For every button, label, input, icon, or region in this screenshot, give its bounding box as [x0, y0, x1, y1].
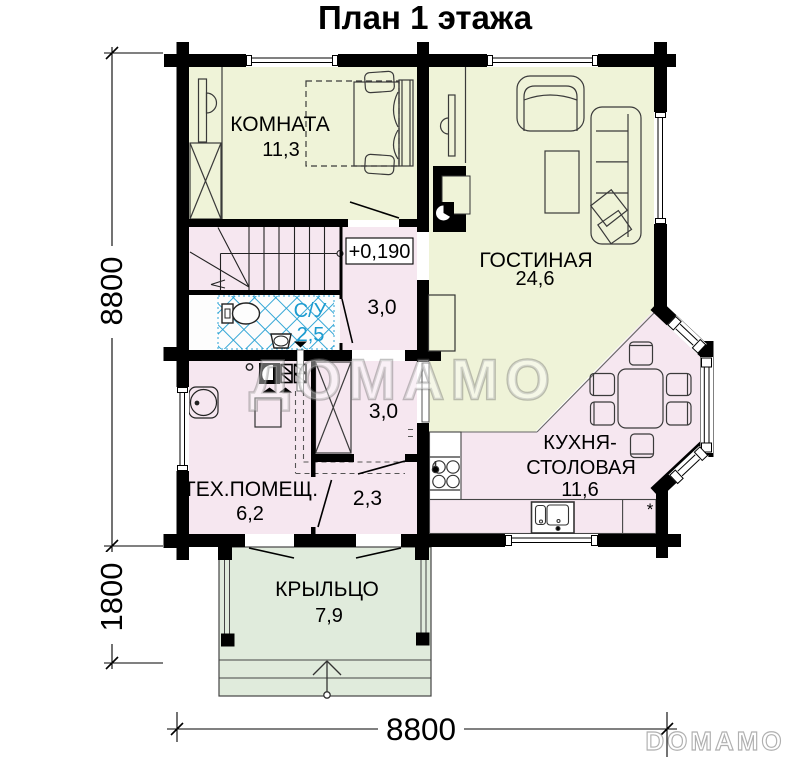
svg-text:С/У: С/У [294, 300, 327, 322]
svg-text:1800: 1800 [94, 563, 129, 632]
svg-text:ТЕХ.ПОМЕЩ.: ТЕХ.ПОМЕЩ. [183, 478, 318, 501]
svg-text:8800: 8800 [94, 257, 129, 326]
svg-text:11,3: 11,3 [262, 139, 299, 161]
svg-text:11,6: 11,6 [561, 479, 598, 501]
svg-text:КОМНАТА: КОМНАТА [230, 113, 330, 136]
svg-text:6,2: 6,2 [236, 503, 264, 525]
svg-text:3,0: 3,0 [367, 296, 396, 319]
svg-text:План 1 этажа: План 1 этажа [318, 0, 533, 36]
svg-text:2,5: 2,5 [297, 324, 325, 346]
svg-text:7,9: 7,9 [315, 605, 343, 627]
svg-text:8800: 8800 [386, 711, 456, 747]
svg-text:СТОЛОВАЯ: СТОЛОВАЯ [526, 457, 636, 479]
svg-text:+0,190: +0,190 [349, 241, 411, 263]
svg-text:2,3: 2,3 [353, 487, 382, 510]
svg-text:ДОМАМО: ДОМАМО [249, 348, 556, 412]
svg-text:24,6: 24,6 [516, 268, 555, 290]
svg-text:КРЫЛЬЦО: КРЫЛЬЦО [275, 578, 379, 601]
svg-text:*: * [647, 500, 654, 519]
svg-text:DOMAMO: DOMAMO [645, 726, 784, 756]
svg-text:КУХНЯ-: КУХНЯ- [543, 432, 616, 454]
